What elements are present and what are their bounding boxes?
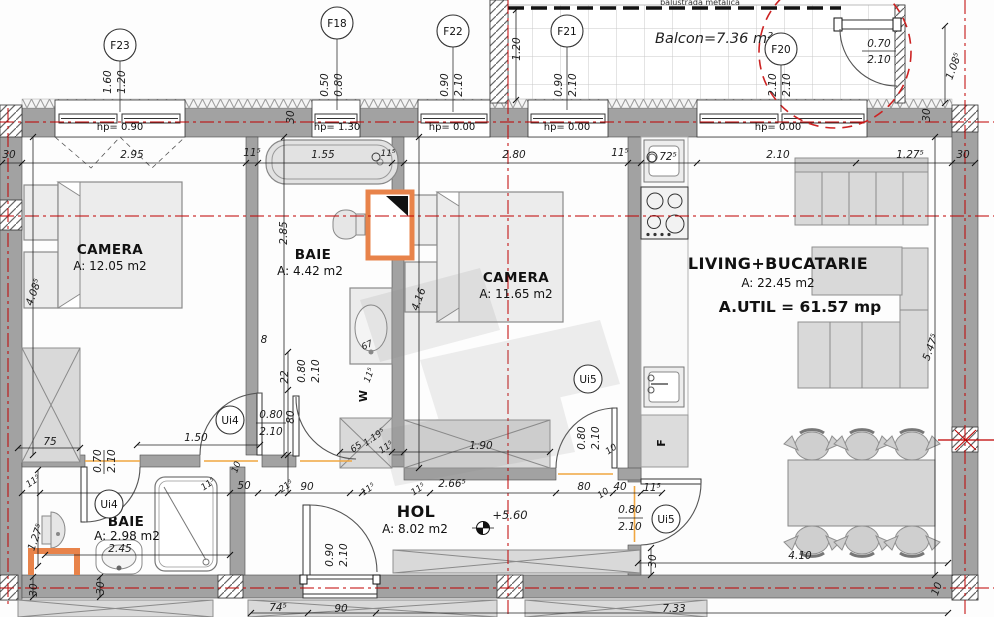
dim-label: 2.10: [766, 149, 790, 161]
adjacent-furniture: [18, 600, 707, 617]
sofa: [795, 158, 928, 225]
dim-label: 2.10: [767, 73, 779, 97]
chair: [884, 430, 940, 460]
floor-plan-page: CAMERA A: 12.05 m2 BAIE A: 4.42 m2 CAMER…: [0, 0, 994, 617]
wall-bottom: [22, 575, 952, 598]
room-name: CAMERA: [483, 270, 549, 286]
windows: [55, 100, 867, 168]
dim-label: 30: [28, 583, 40, 597]
dim-label: 80: [577, 481, 591, 493]
dim-label: 11⁵: [410, 481, 428, 498]
dim-label: 11⁵: [363, 366, 378, 384]
hp-label: hp= 1.30: [314, 122, 361, 133]
dim-label: 0.50: [319, 73, 331, 97]
dim-label: 2.80: [502, 149, 526, 161]
window-tag: F23: [104, 29, 136, 61]
hp-label: hp= 0.00: [429, 122, 476, 133]
dim-label: 2.10: [310, 359, 322, 383]
wall-h-mid-b: [140, 455, 200, 467]
balustrade-label: balustrada metalica: [660, 0, 740, 7]
kitchen-sink-2: [644, 367, 684, 407]
dim-label: 1.60: [102, 70, 114, 94]
dim-label: 30: [921, 108, 933, 122]
dim-label: 11⁵: [243, 147, 261, 159]
window-tag: F20: [765, 33, 797, 65]
toilet: [42, 512, 65, 548]
kitchen-counter: [641, 137, 688, 467]
room-area: A: 11.65 m2: [479, 287, 552, 301]
dim-label: 22: [279, 370, 291, 384]
chair: [834, 430, 890, 460]
dining-table: [788, 460, 935, 526]
dim-label: 11⁵: [643, 482, 661, 494]
dim-label: 1.50: [184, 432, 208, 444]
room-name: HOL: [397, 502, 435, 521]
dim-label: 1.55: [311, 149, 335, 161]
dim-label: 0.80: [333, 73, 345, 97]
balcony-label: Balcon=7.36 m²: [655, 31, 773, 47]
dim-label: 72⁵: [659, 151, 677, 163]
dim-label: 1.20: [511, 37, 523, 61]
dim-label: 90: [300, 481, 314, 493]
hp-label: hp= 0.90: [97, 122, 144, 133]
dim-label: 0.80: [618, 504, 642, 516]
window-tag: F22: [437, 15, 469, 47]
dim-label: 0.90: [553, 73, 565, 97]
chair: [884, 526, 940, 556]
chair: [834, 526, 890, 556]
wall-h-mid-c: [262, 455, 296, 467]
chair: [784, 430, 840, 460]
dim-label: 2.85: [278, 221, 290, 245]
dim-label: 2.10: [618, 521, 642, 533]
dim-label: 2.10: [106, 449, 118, 473]
door-tag: Ui4: [95, 490, 123, 518]
fridge-label: F: [655, 439, 668, 447]
dim-label: 8: [261, 334, 268, 346]
dim-label: 0.80: [576, 426, 588, 450]
dim-label: 2.10: [867, 54, 891, 66]
dim-label: 2.10: [567, 73, 579, 97]
room-area: A: 8.02 m2: [382, 522, 448, 536]
dim-label: 2.10: [453, 73, 465, 97]
dim-label: 1.20: [116, 70, 128, 94]
svg-text:F18: F18: [327, 18, 346, 30]
useful-area-label: A.UTIL = 61.57 mp: [719, 298, 881, 316]
dim-label: 7.33: [662, 603, 685, 615]
room-name: LIVING+BUCATARIE: [688, 254, 868, 273]
ventilation-shaft: [368, 192, 412, 258]
svg-text:Ui4: Ui4: [221, 415, 239, 427]
dim-label: 11⁵: [25, 473, 43, 490]
window-tag: F21: [551, 15, 583, 47]
dim-label: 1.08⁵: [944, 51, 965, 81]
svg-text:Ui4: Ui4: [100, 499, 118, 511]
dim-label: 0.70: [867, 38, 891, 50]
floor-plan-drawing: CAMERA A: 12.05 m2 BAIE A: 4.42 m2 CAMER…: [0, 0, 994, 617]
washer-label: W: [357, 390, 370, 402]
dim-label: 1.27⁵: [896, 149, 924, 161]
dim-label: 10: [596, 486, 611, 501]
bathtub: [266, 140, 398, 184]
dim-label: 2.45: [108, 543, 132, 555]
dim-label: 80: [285, 410, 297, 424]
room-area: A: 2.98 m2: [94, 529, 160, 543]
cooktop: [641, 187, 688, 239]
hp-label: hp= 0.00: [755, 122, 802, 133]
wall-camera2-living: [628, 137, 641, 482]
dim-label: 74⁵: [269, 602, 287, 614]
wall-camera2-bottom-b: [618, 468, 641, 480]
svg-text:F22: F22: [443, 26, 462, 38]
wall-camera1-baie: [246, 137, 258, 455]
hp-label: hp= 0.00: [544, 122, 591, 133]
window-tag: F18: [321, 7, 353, 39]
dim-label: 30: [2, 149, 16, 161]
dim-label: 30: [285, 110, 297, 124]
dim-label: 11⁵: [360, 481, 378, 498]
dim-label: 11⁵: [380, 149, 395, 159]
svg-text:F20: F20: [771, 44, 790, 56]
room-name: CAMERA: [77, 242, 143, 258]
dim-label: 2.10: [259, 426, 283, 438]
svg-text:Ui5: Ui5: [579, 374, 596, 386]
door-tag: Ui5: [652, 505, 680, 533]
dim-label: 30: [956, 149, 970, 161]
dim-label: 0.70: [92, 449, 104, 473]
dim-label: 75: [43, 436, 57, 448]
dim-label: 1.90: [469, 440, 493, 452]
nightstand: [24, 185, 58, 240]
svg-text:F21: F21: [557, 26, 576, 38]
wall-left: [0, 108, 22, 600]
room-area: A: 4.42 m2: [277, 264, 343, 278]
dim-label: 2.66⁵: [438, 478, 466, 490]
level-marker: [472, 522, 494, 535]
svg-text:Ui5: Ui5: [657, 514, 674, 526]
room-area: A: 22.45 m2: [741, 276, 814, 290]
level-label: +5.60: [492, 508, 527, 522]
dim-label: 2.10: [338, 543, 350, 567]
door-tag: Ui5: [574, 365, 602, 393]
dim-label: 0.90: [324, 543, 336, 567]
dim-label: 2.95: [120, 149, 144, 161]
dim-label: 0.90: [439, 73, 451, 97]
door-tag: Ui4: [216, 406, 244, 434]
room-area: A: 12.05 m2: [73, 259, 146, 273]
dining-set: [784, 430, 940, 557]
dim-label: 50: [237, 480, 251, 492]
dim-label: 11⁵: [611, 147, 629, 159]
dim-label: 30: [647, 554, 659, 568]
dim-label: 4.10: [788, 550, 812, 562]
dim-label: 0.80: [296, 359, 308, 383]
dim-label: 90: [334, 603, 348, 615]
dim-label: 30: [95, 581, 107, 595]
dim-label: 2.10: [590, 426, 602, 450]
hall-cabinet: [393, 550, 640, 573]
dim-label: 2.10: [781, 73, 793, 97]
dim-label: 40: [613, 481, 627, 493]
dim-label: 0.80: [259, 409, 283, 421]
toilet: [333, 210, 365, 239]
svg-text:F23: F23: [110, 40, 129, 52]
room-name: BAIE: [295, 247, 332, 263]
